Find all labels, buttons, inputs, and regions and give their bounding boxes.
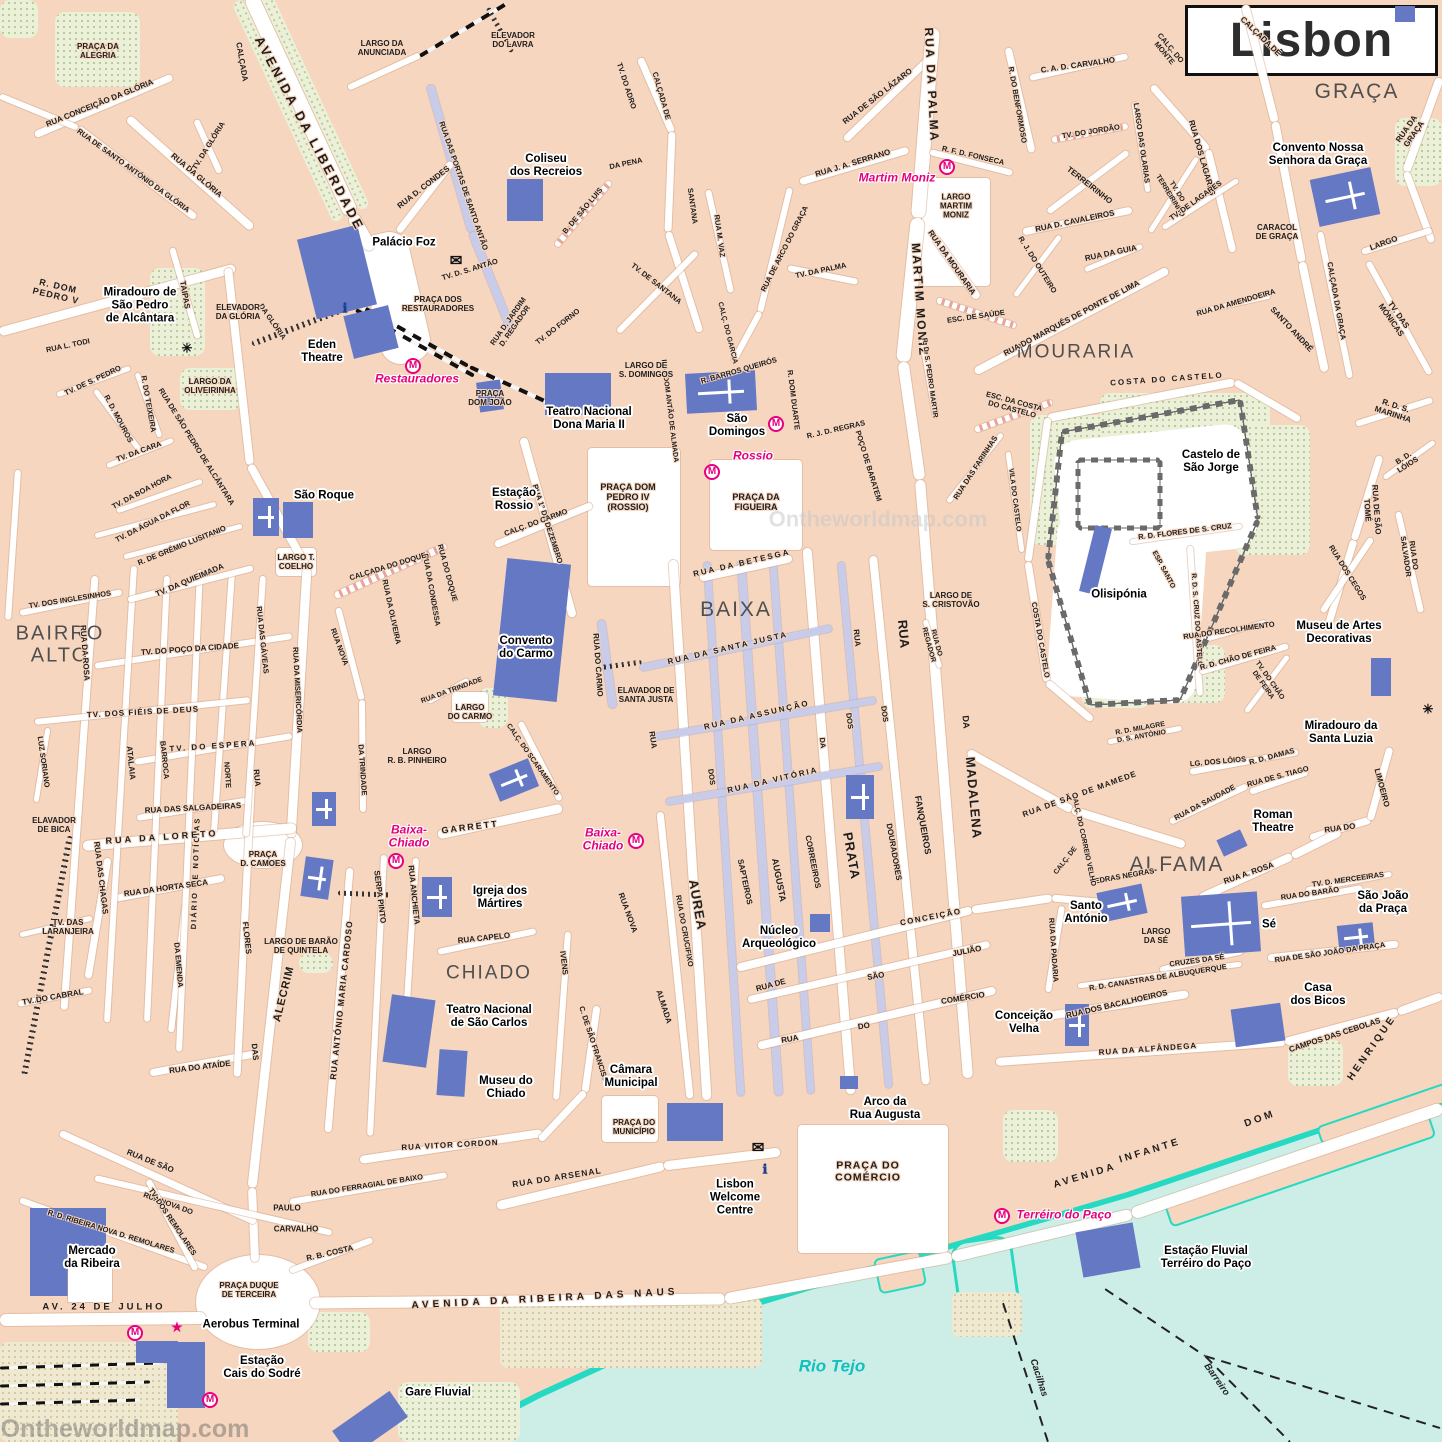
castle-wall: [1076, 460, 1081, 528]
street-label-pedras-negras: PEDRAS NEGRAS: [1089, 867, 1155, 887]
landmark-label-c-mara-municipal: Câmara Municipal: [604, 1064, 657, 1090]
street-label-dom: DOM: [1243, 1108, 1277, 1130]
district-mouraria: MOURARIA: [1017, 341, 1135, 362]
building: [667, 1103, 723, 1141]
building: [422, 877, 452, 917]
street-label-dos: DOS: [844, 712, 855, 729]
landmark-label-concei-o-velha: Conceição Velha: [995, 1010, 1053, 1036]
street-label-rua-vitor-cordon: RUA VITOR CORDON: [401, 1139, 499, 1153]
street-label-rua-das-farinhas: RUA DAS FARINHAS: [952, 435, 1000, 502]
street-label-r-d-milagre-d-s-ant-nio: R. D. MILAGRE D. S. ANTÓNIO: [1115, 721, 1167, 745]
street: [248, 1188, 259, 1262]
street-label-r-b-costa: R. B. COSTA: [306, 1244, 355, 1263]
district-bairro-alto: BAIRRO ALTO: [16, 623, 105, 668]
place-label-elevador-do-lavra: ELEVADOR DO LAVRA: [491, 32, 535, 50]
street-label-rua-das-portas-de-santo-ant-o: RUA DAS PORTAS DE SANTO ANTÃO: [437, 120, 489, 251]
street: [5, 470, 21, 620]
street-label-madalena: MADALENA: [962, 756, 984, 839]
street: [898, 361, 926, 481]
landmark-label-convento-nossa-senhora-da-gra-a: Convento Nossa Senhora da Graça: [1269, 142, 1367, 168]
street-label-b-d-l-ios: B. D. LÓIOS: [1386, 445, 1425, 479]
metro-station-label-baixa-chiado: Baixa- Chiado: [583, 827, 624, 854]
street-label-rua-do-salvador: RUA DO SALVADOR: [1398, 535, 1420, 578]
landmark-label-santo-ant-nio: Santo António: [1064, 900, 1107, 926]
metro-station-icon: M: [768, 416, 784, 432]
street-label-r-d-s-marinha: R. D. S. MARINHA: [1368, 395, 1419, 427]
envelope-icon: ✉: [450, 254, 463, 271]
landmark-label-arco-da-rua-augusta: Arco da Rua Augusta: [850, 1096, 921, 1122]
church-cross-icon: [851, 796, 869, 799]
street-label-cal-ada: CALÇADA: [233, 42, 249, 83]
street-label-rua-da-alf-ndega: RUA DA ALFÂNDEGA: [1098, 1042, 1197, 1058]
street-label-rua-de-santo-ant-nio-da-gl-ria: RUA DE SANTO ANTÓNIO DA GLÓRIA: [75, 127, 191, 214]
street-label-r-d-damas: R. D. DAMAS: [1248, 747, 1295, 767]
street-label-largo: LARGO: [1369, 235, 1399, 253]
building: [1181, 891, 1261, 956]
street-label-rua-da-oliveira: RUA DA OLIVEIRA: [380, 579, 402, 645]
street-label-rua-do-doque: RUA DO DOQUE: [435, 543, 458, 602]
street-label-rua: RUA: [781, 1034, 800, 1046]
street-label-avenida: AVENIDA: [1052, 1161, 1118, 1191]
district-chiado: CHIADO: [446, 962, 532, 983]
street: [665, 132, 676, 232]
street-label-b-de-s-o-luis: B. DE SÃO LUIS: [561, 186, 604, 235]
landmark-label-miradouro-da-santa-luzia: Miradouro da Santa Luzia: [1305, 720, 1378, 746]
landmark-label-igreja-dos-m-rtires: Igreja dos Mártires: [473, 885, 527, 911]
district-baixa: BAIXA: [700, 598, 772, 622]
place-label-pra-a-do-munic-pio: PRAÇA DO MUNICÍPIO: [613, 1119, 655, 1137]
street-label-r-do-teixeira: R. DO TEIXEIRA: [139, 375, 157, 433]
metro-station-label-restauradores: Restauradores: [375, 372, 459, 385]
place-label-largo-de-s-domingos: LARGO DE S. DOMINGOS: [619, 362, 673, 380]
street: [224, 268, 254, 466]
street-label-sapteiros: SAPTEIROS: [735, 858, 753, 905]
watermark: Ontheworldmap.com: [1, 1415, 250, 1442]
landmark-label-s-o-jo-o-da-pra-a: São João da Praça: [1357, 890, 1408, 916]
park-area: [308, 1312, 370, 1352]
street: [104, 566, 137, 1022]
street-label-r-d-canastras-de-albuquerque: R. D. CANASTRAS DE ALBUQUERQUE: [1089, 963, 1228, 993]
church-cross-icon: [1344, 934, 1368, 939]
street-label-c-a-d-carvalho: C. A. D. CARVALHO: [1040, 56, 1115, 75]
street-label-paulo: PAULO: [273, 1205, 300, 1214]
street-label-cal-de: CALÇ. DE: [1053, 846, 1080, 877]
building: [312, 792, 336, 826]
street-label-r-d-s-pedro-martir: R. D. S. PEDRO MARTIR: [920, 338, 939, 419]
castle-wall: [1078, 458, 1160, 463]
info-icon: ℹ: [763, 1163, 768, 1178]
street-label-r-de-gr-mio-lusitanio: R. DE GRÉMIO LUSITANIO: [137, 524, 228, 567]
street-label-norte: NORTE: [222, 762, 232, 789]
place-label-largo-da-oliveirinha: LARGO DA OLIVEIRINHA: [184, 378, 236, 396]
street-label-dos: DOS: [879, 705, 890, 722]
street: [1397, 992, 1442, 1016]
street-label-rua-l-todi: RUA L. TODI: [45, 337, 90, 354]
street-label-atalaia: ATALAIA: [124, 746, 136, 781]
metro-station-icon: M: [628, 833, 644, 849]
landmark-label-convento-do-carmo: Convento do Carmo: [499, 635, 553, 661]
building: [846, 775, 874, 819]
street: [144, 576, 170, 1022]
landmark-label-n-cleo-arqueol-gico: Núcleo Arqueológico: [742, 925, 816, 951]
building: [840, 1076, 858, 1089]
building: [1231, 1003, 1286, 1048]
watermark: Ontheworldmap.com: [769, 508, 988, 533]
place-label-largo-t-coelho: LARGO T. COELHO: [277, 554, 314, 572]
place-label-pra-a-d-camoes: PRAÇA D. CAMOES: [240, 851, 285, 869]
street-label-rua: RUA: [646, 731, 657, 749]
street-label-rua-da-condessa: RUA DA CONDESSA: [421, 553, 442, 627]
street-label-prata: PRATA: [840, 831, 863, 881]
church-cross-icon: [1191, 920, 1252, 927]
street-label-rua-nova: RUA NOVA: [616, 892, 639, 934]
place-label-largo-da-anunciada: LARGO DA ANUNCIADA: [358, 40, 406, 58]
landmark-label-s: Sé: [1262, 919, 1276, 932]
street-label-r-dom-pedro-v: R. DOM PEDRO V: [32, 276, 83, 306]
building: [283, 502, 313, 538]
metro-station-icon: M: [704, 464, 720, 480]
street-label-infante: INFANTE: [1118, 1136, 1182, 1165]
street-label-cal-ada-da-gra-a: CALÇADA DA GRAÇA: [1325, 261, 1347, 340]
landmark-label-esta-o-rossio: Estação Rossio: [492, 487, 536, 513]
street-label-carvalho: CARVALHO: [274, 1226, 319, 1235]
place-label-largo-r-b-pinheiro: LARGO R. B. PINHEIRO: [387, 748, 446, 766]
building: [253, 498, 279, 536]
landmark-label-teatro-nacional-de-s-o-carlos: Teatro Nacional de São Carlos: [446, 1004, 531, 1030]
church-cross-icon: [308, 875, 326, 881]
street-label-av-24-de-julho: AV. 24 DE JULHO: [42, 1303, 165, 1314]
landmark-label-mercado-da-ribeira: Mercado da Ribeira: [64, 1245, 120, 1271]
building: [493, 558, 571, 702]
building: [1371, 658, 1391, 696]
city-square: [798, 1125, 948, 1253]
church-cross-icon: [1069, 1024, 1085, 1027]
metro-station-label-rossio: Rossio: [733, 449, 773, 462]
building: [332, 1391, 408, 1442]
street-label-tv-do-jord-o: TV. DO JORDÃO: [1061, 123, 1120, 140]
place-label-pra-a-do-com-rcio: PRAÇA DO COMÉRCIO: [835, 1160, 901, 1184]
street-label-cal-do-monte: CALÇ. DO MONTE: [1149, 32, 1185, 71]
church-cross-icon: [1325, 191, 1365, 202]
building: [1395, 6, 1415, 22]
landmark-label-esta-o-fluvial-terr-iro-do-pa-o: Estação Fluvial Terréiro do Paço: [1161, 1245, 1252, 1271]
metro-station-label-terr-iro-do-pa-o: Terréiro do Paço: [1017, 1208, 1112, 1221]
street-label-da: DA: [817, 737, 826, 749]
church-cross-icon: [439, 885, 442, 908]
street-label-tv-do-cabral: TV. DO CABRAL: [22, 988, 85, 1008]
street-label-rua-anchieta: RUA ANCHIETA: [405, 865, 420, 925]
sand-area: [500, 1298, 762, 1368]
place-label-elevador-da-gl-ria: ELEVADOR DA GLÓRIA: [216, 304, 261, 322]
street-label-costa-do-castelo: COSTA DO CASTELO: [1029, 602, 1051, 679]
street-label-ivens: IVENS: [557, 951, 569, 976]
church-cross-icon: [698, 389, 744, 394]
park-area: [0, 0, 38, 38]
park-area: [1003, 1110, 1058, 1162]
church-cross-icon: [268, 506, 271, 528]
building: [136, 1341, 178, 1363]
place-label-elavador-de-bica: ELAVADOR DE BICA: [32, 817, 76, 835]
place-label-pra-a-duque-de-terceira: PRAÇA DUQUE DE TERCEIRA: [219, 1282, 278, 1300]
metro-station-icon: M: [939, 159, 955, 175]
street-label-rua-de-s-o-tom: RUA DE SÃO TOMÉ: [1360, 474, 1383, 546]
street-label-po-o-de-baratem: POÇO DE BARATEM: [853, 430, 883, 503]
street-label-fanqueiros: FANQUEIROS: [913, 795, 933, 855]
landmark-label-aerobus-terminal: Aerobus Terminal: [203, 1319, 300, 1332]
street-label-rua-d-cavaleiros: RUA D. CAVALEIROS: [1035, 209, 1116, 235]
landmark-label-teatro-nacional-dona-maria-ii: Teatro Nacional Dona Maria II: [546, 406, 631, 432]
street-label-avenida-da-liberdade: AVENIDA DA LIBERDADE: [251, 34, 366, 234]
place-label-pra-a-da-alegria: PRAÇA DA ALEGRIA: [77, 43, 119, 61]
metro-station-icon: M: [202, 1392, 218, 1408]
castle-wall: [1078, 526, 1160, 531]
church-cross-icon: [862, 784, 865, 810]
street-label-largo-das-olarias: LARGO DAS OLARIAS: [1131, 102, 1151, 183]
building: [436, 1049, 467, 1097]
landmark-label-esta-o-cais-do-sodr: Estação Cais do Sodré: [223, 1355, 300, 1381]
street-label-rua-da-amendoeira: RUA DA AMENDOEIRA: [1196, 288, 1277, 319]
castle-wall: [1158, 460, 1163, 528]
place-label-caracol-de-gra-a: CARACOL DE GRAÇA: [1256, 224, 1299, 242]
building: [507, 179, 543, 221]
street-label-augusta: AUGUSTA: [770, 858, 788, 903]
place-label-pra-a-dos-restauradores: PRAÇA DOS RESTAURADORES: [402, 296, 474, 314]
building: [300, 856, 333, 900]
street-label-tv-do-adro: TV. DO ADRO: [615, 62, 638, 110]
street-label-santana: SANTANA: [685, 188, 698, 225]
street-label-rua: RUA: [851, 629, 862, 647]
street: [248, 838, 296, 1189]
street-label-rua-m-vaz: RUA M. VAZ: [712, 214, 726, 258]
street-label-dos: DOS: [706, 768, 717, 785]
street-label-do: DO: [857, 1022, 870, 1033]
street-label-correeiros: CORREEIROS: [802, 835, 821, 890]
church-cross-icon: [316, 808, 332, 811]
landmark-label-eden-theatre: Eden Theatre: [301, 339, 343, 365]
street: [347, 52, 421, 90]
church-cross-icon: [427, 896, 447, 899]
street-label-aurea: AUREA: [685, 879, 708, 932]
place-label-largo-martim-moniz: LARGO MARTIM MONIZ: [940, 194, 972, 221]
street-label-rua-do-ata-de: RUA DO ATAÍDE: [169, 1060, 231, 1076]
landmark-label-pal-cio-foz: Palácio Foz: [372, 237, 435, 250]
street-label-cal-do-garcia: CALÇ. DO GARCIA: [716, 301, 739, 364]
street-label-tv-dos-fi-is-de-deus: TV. DOS FIÉIS DE DEUS: [87, 706, 200, 721]
street-label-rua-d-condes: RUA D. CONDES: [396, 165, 452, 211]
landmark-label-museu-de-artes-decorativas: Museu de Artes Decorativas: [1296, 620, 1381, 646]
metro-station-icon: M: [994, 1208, 1010, 1224]
place-label-largo-da-s: LARGO DA SÉ: [1142, 928, 1171, 946]
landmark-label-coliseu-dos-recreios: Coliseu dos Recreios: [510, 153, 582, 179]
metro-station-icon: M: [127, 1325, 143, 1341]
street-label-rua-do-regador: RUA DO REGADOR: [920, 625, 944, 664]
street-label-almada: ALMADA: [653, 989, 672, 1025]
street: [669, 560, 712, 1101]
street-label-rua-de-s-o-l-zaro: RUA DE SÃO LÁZARO: [842, 67, 915, 127]
landmark-label-museu-do-chiado: Museu do Chiado: [479, 1075, 533, 1101]
street: [437, 804, 563, 840]
street-label-tv-dos-inglesinhos: TV. DOS INGLESINHOS: [28, 589, 111, 610]
park-area: [299, 953, 333, 973]
street: [1071, 806, 1186, 849]
place-label-tv-das-laranjeira: TV. DAS LARANJEIRA: [42, 919, 94, 937]
landmark-label-castelo-de-s-o-jorge: Castelo de São Jorge: [1182, 449, 1240, 475]
street-label-rua: RUA: [895, 619, 912, 648]
church-cross-icon: [1107, 898, 1137, 907]
street-label-rua-do-ferragial-de-baixo: RUA DO FERRAGIAL DE BAIXO: [310, 1173, 423, 1199]
street: [537, 1090, 587, 1143]
lisbon-map: Lisbon 0 100m BAIRRO ALTOCHIADOBAIXAMOUR…: [0, 0, 1442, 1442]
building: [382, 994, 435, 1067]
info-icon: ℹ: [343, 302, 348, 317]
place-label-pra-a-dom-pedro-iv-rossio: PRAÇA DOM PEDRO IV (ROSSIO): [600, 482, 655, 512]
street-label-vila-do-castelo: VILA DO CASTELO: [1006, 468, 1022, 532]
church-cross-icon: [1358, 929, 1363, 944]
street-label-tv-das-m-nicas: TV. DAS MÓNICAS: [1373, 293, 1415, 343]
street-label-santo-andr: SANTO ANDRÉ: [1268, 306, 1314, 355]
street-label-r-d-mouros: R. D. MOUROS: [102, 394, 134, 445]
street-label-rua-da-santa-justa: RUA DA SANTA JUSTA: [667, 631, 789, 667]
viewpoint-icon: ✳: [182, 342, 193, 357]
landmark-label-casa-dos-bicos: Casa dos Bicos: [1291, 982, 1346, 1008]
church-cross-icon: [258, 516, 275, 519]
place-label-pra-a-dom-jo-o: PRAÇA DOM JOÃO: [468, 390, 512, 408]
street-label-tv-do-espera: TV. DO ESPERA: [169, 739, 256, 754]
river-label-rio-tejo: Rio Tejo: [799, 1356, 865, 1375]
place-label-largo-do-carmo: LARGO DO CARMO: [448, 704, 492, 722]
street-label-da-pena: DA PENA: [609, 156, 643, 171]
street: [1298, 261, 1329, 373]
district-gra-a: GRAÇA: [1315, 80, 1400, 104]
street-label-da-trindade: DA TRINDADE: [356, 744, 368, 796]
place-label-largo-de-bar-o-de-quintela: LARGO DE BARÃO DE QUINTELA: [264, 938, 338, 956]
street-label-rua-a-rosa: RUA A. ROSA: [1223, 861, 1275, 886]
place-label-largo-de-s-cristov-o: LARGO DE S. CRISTOVÃO: [922, 592, 979, 610]
church-cross-icon: [325, 799, 328, 819]
place-label-elavador-de-santa-justa: ELAVADOR DE SANTA JUSTA: [617, 687, 674, 705]
landmark-label-roman-theatre: Roman Theatre: [1252, 809, 1294, 835]
building: [1310, 167, 1381, 227]
city-square: [588, 448, 680, 586]
street-label-cal-do-correio-velho: CALÇ. DO CORREIO VELHO: [1069, 793, 1096, 887]
castle-grounds: [1046, 510, 1209, 705]
landmark-label-miradouro-de-s-o-pedro-de-alc-ntara: Miradouro de São Pedro de Alcântara: [104, 287, 177, 326]
street-label-da: DA: [960, 715, 971, 729]
metro-station-icon: M: [388, 853, 404, 869]
street: [971, 894, 1052, 914]
landmark-label-olisip-nia: Olisipónia: [1091, 589, 1147, 602]
metro-station-label-baixa-chiado: Baixa- Chiado: [389, 824, 430, 851]
street-label-das: DAS: [249, 1043, 260, 1061]
street-label-rua-da-saudade: RUA DA SAUDADE: [1173, 783, 1237, 822]
street-label-tv-da-cara: TV. DA CARA: [115, 440, 162, 464]
street-label-tv-do-forno: TV. DO FORNO: [534, 307, 581, 347]
street-label-rua-de-s-o-jo-o-da-pra-a: RUA DE SÃO JOÃO DA PRAÇA: [1274, 941, 1386, 965]
landmark-label-s-o-roque: São Roque: [294, 490, 354, 503]
landmark-label-gare-fluvial: Gare Fluvial: [405, 1387, 471, 1400]
landmark-label-s-o-domingos: São Domingos: [709, 413, 765, 439]
metro-station-label-martim-moniz: Martim Moniz: [859, 171, 936, 184]
street-label-r-dom-duarte: R. DOM DUARTE: [785, 370, 801, 431]
envelope-icon: ✉: [752, 1141, 765, 1158]
viewpoint-icon: ✳: [1423, 703, 1434, 718]
street-label-rua: RUA: [251, 769, 262, 787]
street-label-garrett: GARRETT: [441, 818, 499, 835]
star-icon: ★: [171, 1321, 183, 1336]
landmark-label-lisbon-welcome-centre: Lisbon Welcome Centre: [710, 1179, 760, 1218]
church-cross-icon: [727, 380, 731, 404]
